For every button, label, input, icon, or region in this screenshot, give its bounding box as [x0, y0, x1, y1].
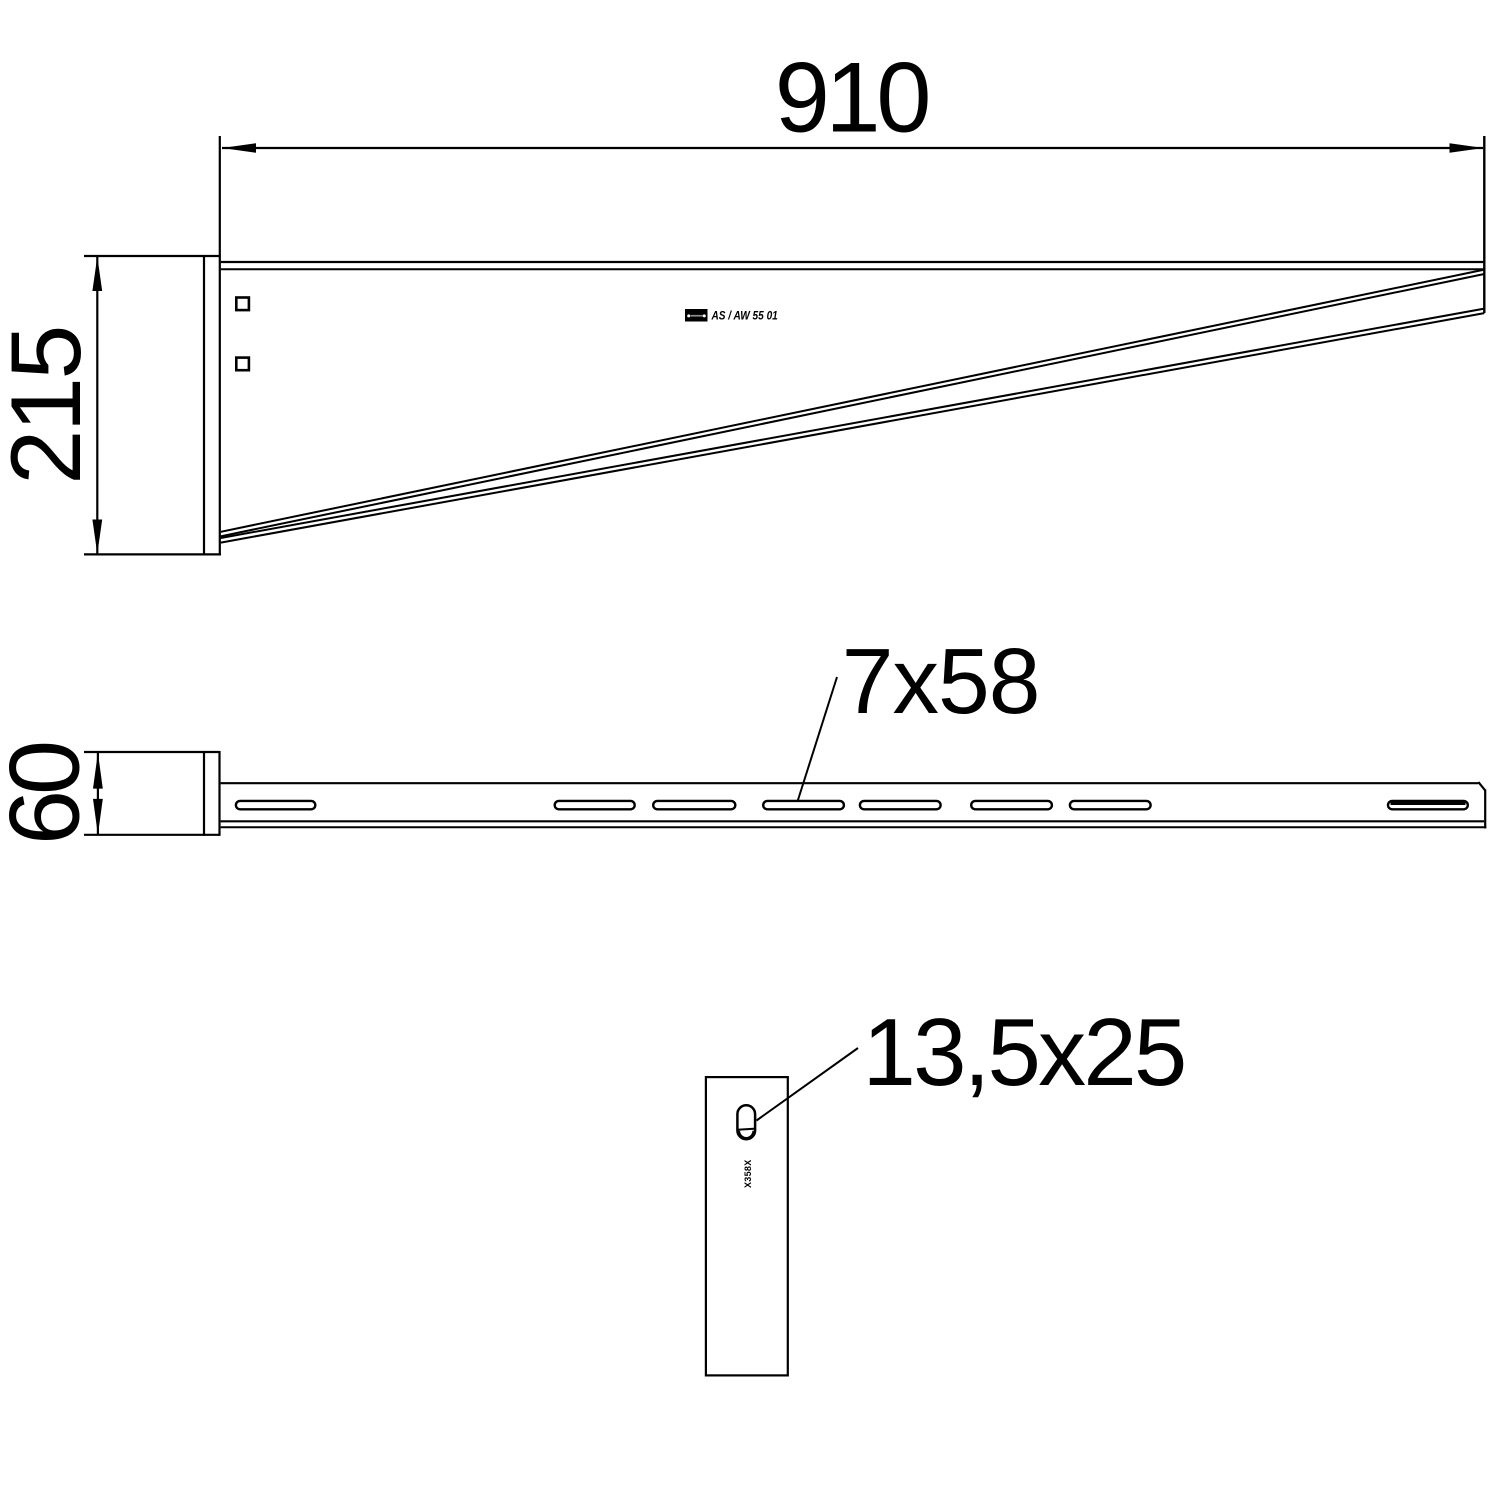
svg-text:13,5x25: 13,5x25	[863, 999, 1185, 1106]
svg-text:910: 910	[775, 42, 929, 153]
svg-text:AS / AW 55 01: AS / AW 55 01	[711, 310, 778, 323]
svg-text:215: 215	[0, 327, 101, 485]
svg-text:60: 60	[0, 743, 99, 845]
svg-text:X358X: X358X	[743, 1159, 753, 1188]
svg-text:7x58: 7x58	[842, 629, 1040, 733]
